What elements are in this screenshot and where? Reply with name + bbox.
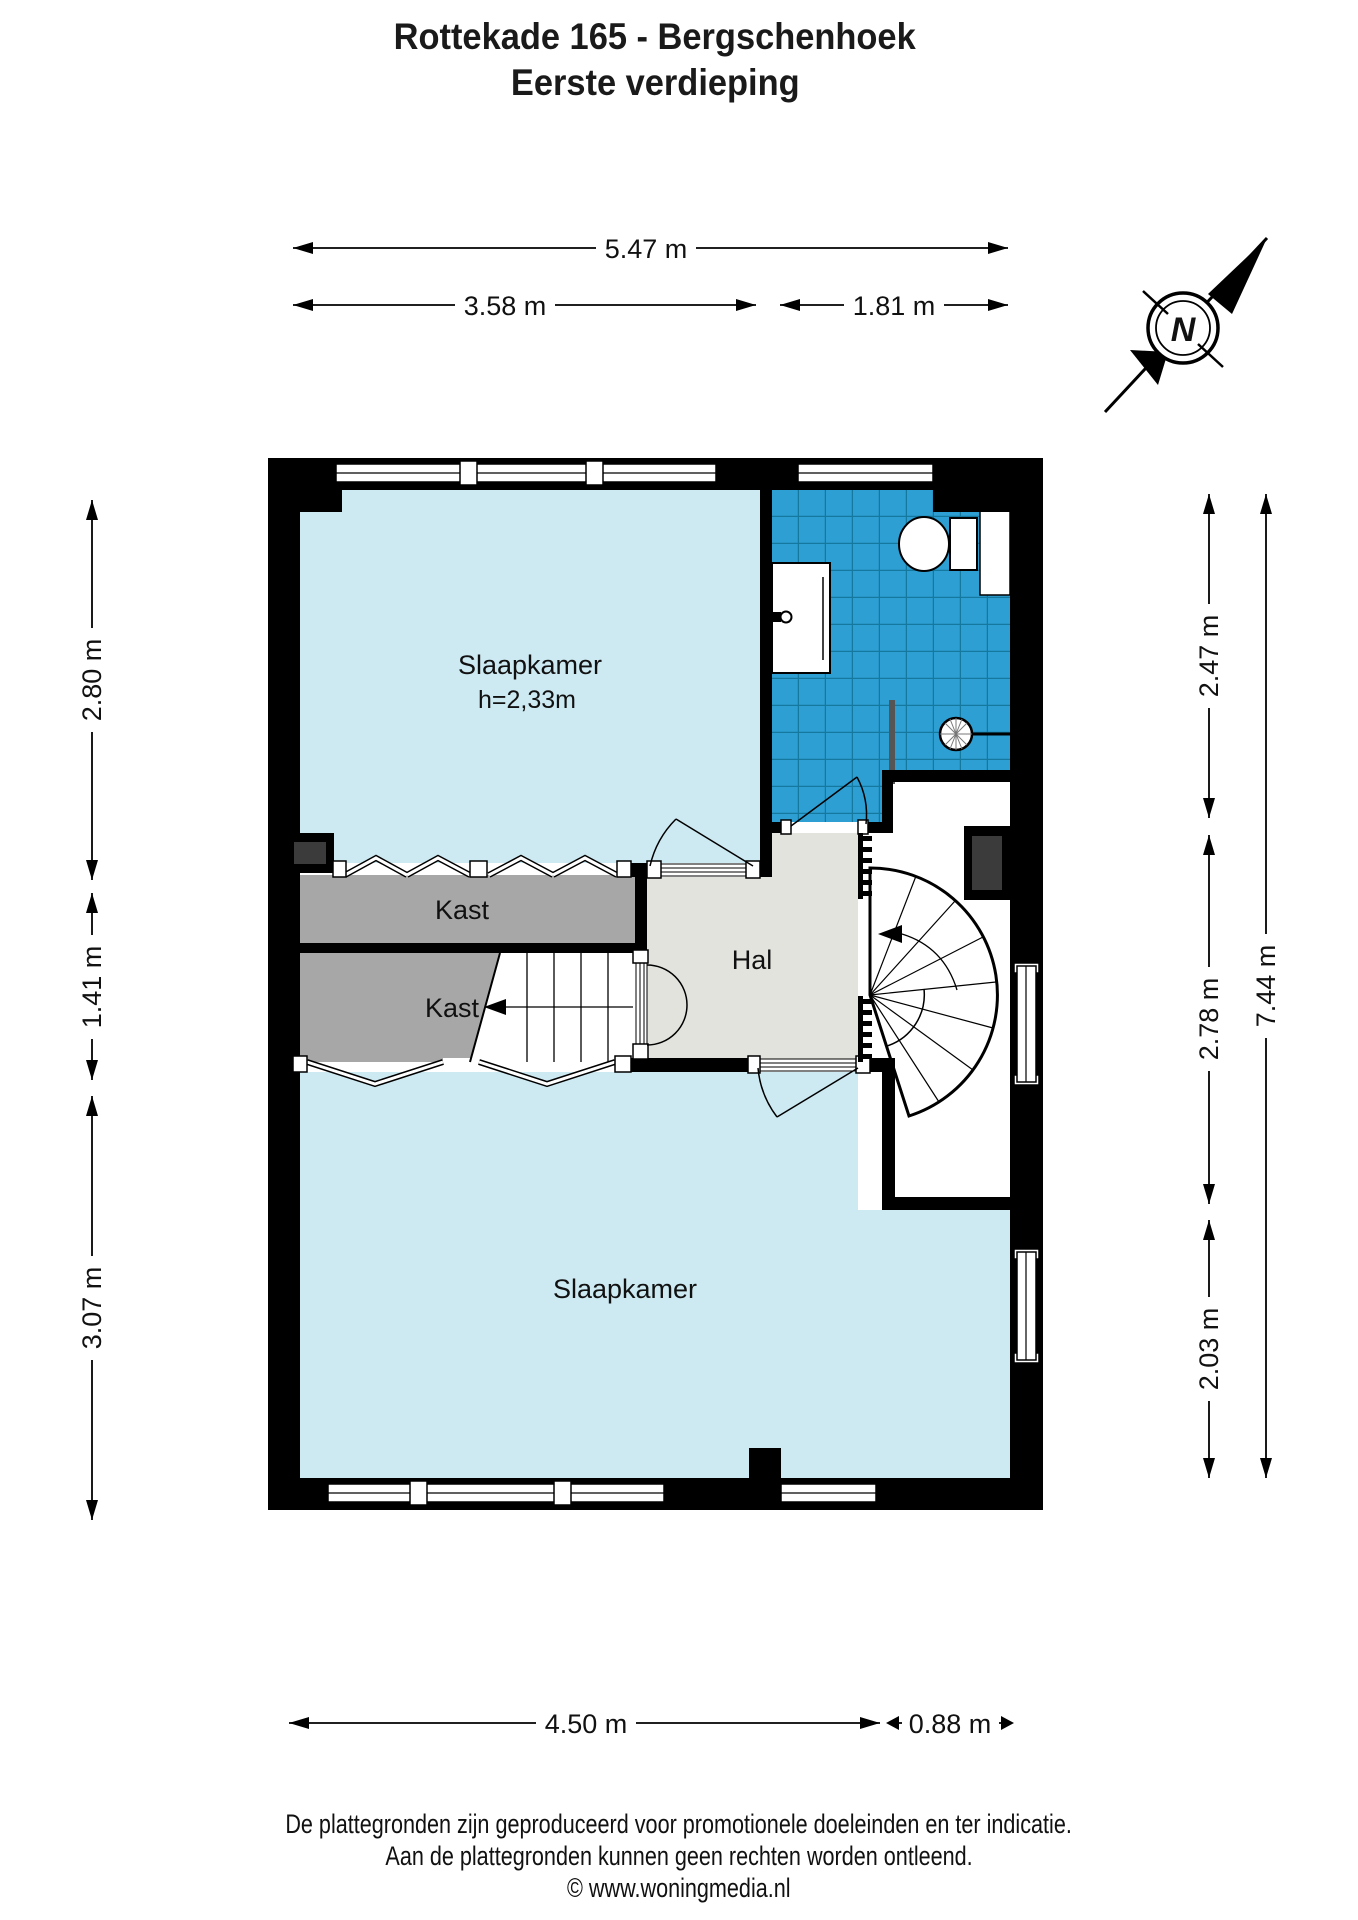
hall-area-upper bbox=[772, 833, 858, 877]
top-wall-pier bbox=[716, 458, 798, 490]
chimney-inset bbox=[294, 842, 326, 864]
window-bottom-large bbox=[328, 1481, 664, 1505]
compass-north-label: N bbox=[1171, 311, 1197, 349]
closet-lower-label: Kast bbox=[425, 993, 480, 1023]
floorplan-page: Rottekade 165 - Bergschenhoek Eerste ver… bbox=[0, 0, 1358, 1920]
closet-upper-label: Kast bbox=[435, 895, 490, 925]
dim-bottom-right: 0.88 m bbox=[909, 1709, 992, 1739]
corner-block-top-right bbox=[933, 458, 1043, 512]
dim-top-left: 3.58 m bbox=[464, 291, 547, 321]
shaft-inset bbox=[972, 836, 1002, 890]
room-fills bbox=[288, 490, 1010, 1478]
dim-left-1: 2.80 m bbox=[77, 639, 107, 722]
folding-doors-upper bbox=[333, 858, 631, 877]
floorplan-drawing: Slaapkamer h=2,33m Kast Kast Hal Slaapka… bbox=[0, 0, 1358, 1920]
toilet bbox=[899, 517, 977, 571]
window-top-bathroom bbox=[798, 464, 933, 482]
window-bottom-small bbox=[781, 1484, 876, 1502]
footer-disclaimer: De plattegronden zijn geproduceerd voor … bbox=[0, 1808, 1358, 1904]
footer-copyright: © www.woningmedia.nl bbox=[567, 1872, 791, 1904]
dim-top-total: 5.47 m bbox=[605, 234, 688, 264]
dim-right-2: 2.78 m bbox=[1194, 978, 1224, 1061]
window-right-bedroom2 bbox=[1014, 1249, 1039, 1363]
dim-right-total: 7.44 m bbox=[1251, 945, 1281, 1028]
dim-right-1: 2.47 m bbox=[1194, 615, 1224, 698]
bedroom1-label: Slaapkamer bbox=[458, 650, 602, 680]
window-top-bedroom1 bbox=[336, 461, 716, 485]
footer-line-1: De plattegronden zijn geproduceerd voor … bbox=[286, 1808, 1073, 1840]
dim-right-3: 2.03 m bbox=[1194, 1308, 1224, 1391]
dim-bottom-left: 4.50 m bbox=[545, 1709, 628, 1739]
footer-line-2: Aan de plattegronden kunnen geen rechten… bbox=[385, 1840, 972, 1872]
compass-rose-icon: N bbox=[1105, 238, 1267, 412]
window-right-stairs bbox=[1014, 963, 1039, 1085]
bedroom2-label: Slaapkamer bbox=[553, 1274, 697, 1304]
dim-left-3: 3.07 m bbox=[77, 1267, 107, 1350]
bottom-wall-notch bbox=[749, 1448, 781, 1478]
dim-left-2: 1.41 m bbox=[77, 946, 107, 1029]
corner-block-top-left bbox=[268, 458, 342, 512]
hall-label: Hal bbox=[732, 945, 773, 975]
bedroom1-height-note: h=2,33m bbox=[478, 686, 576, 714]
dim-top-right: 1.81 m bbox=[853, 291, 936, 321]
